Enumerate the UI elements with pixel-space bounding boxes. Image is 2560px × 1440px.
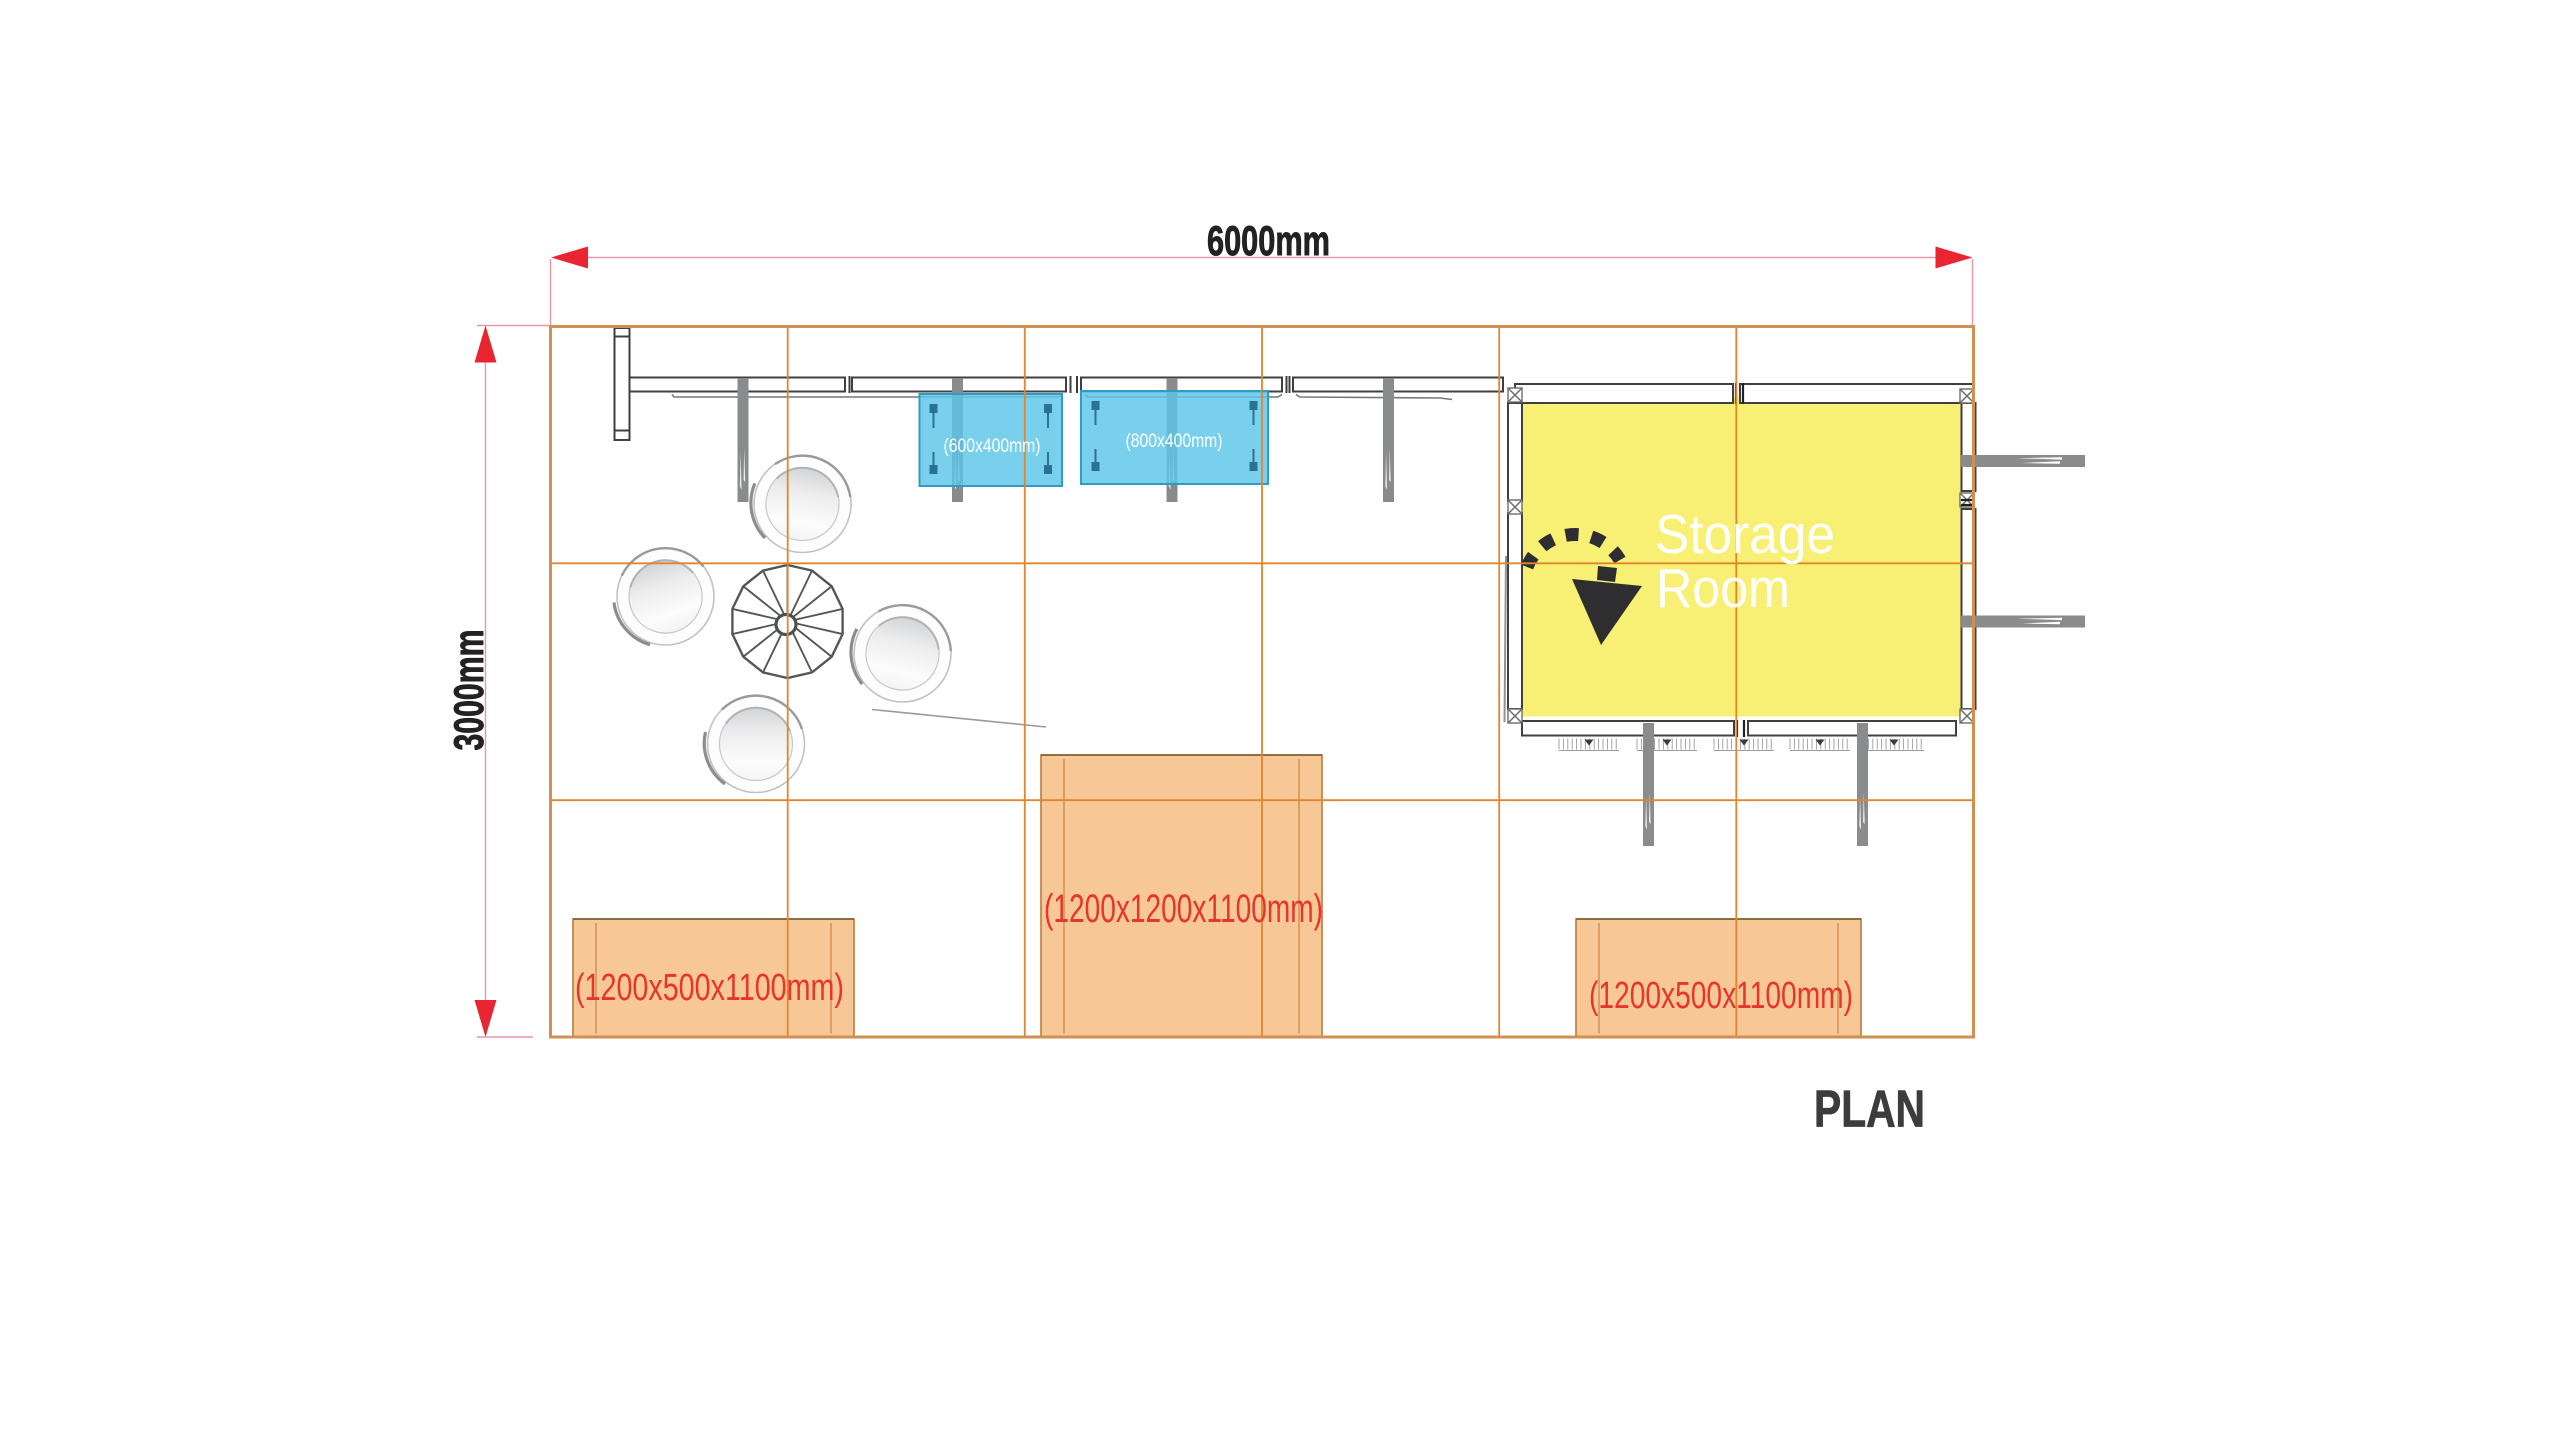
svg-text:Room: Room: [1656, 557, 1790, 619]
svg-text:(1200x500x1100mm): (1200x500x1100mm): [1589, 975, 1853, 1017]
svg-text:(600x400mm): (600x400mm): [944, 436, 1041, 457]
svg-text:(1200x500x1100mm): (1200x500x1100mm): [575, 967, 844, 1009]
svg-text:6000mm: 6000mm: [1207, 217, 1330, 264]
svg-text:(1200x1200x1100mm): (1200x1200x1100mm): [1044, 887, 1323, 931]
svg-text:3000mm: 3000mm: [445, 630, 492, 751]
svg-text:Storage: Storage: [1655, 503, 1835, 565]
svg-text:(800x400mm): (800x400mm): [1126, 431, 1223, 452]
svg-text:PLAN: PLAN: [1814, 1081, 1925, 1139]
